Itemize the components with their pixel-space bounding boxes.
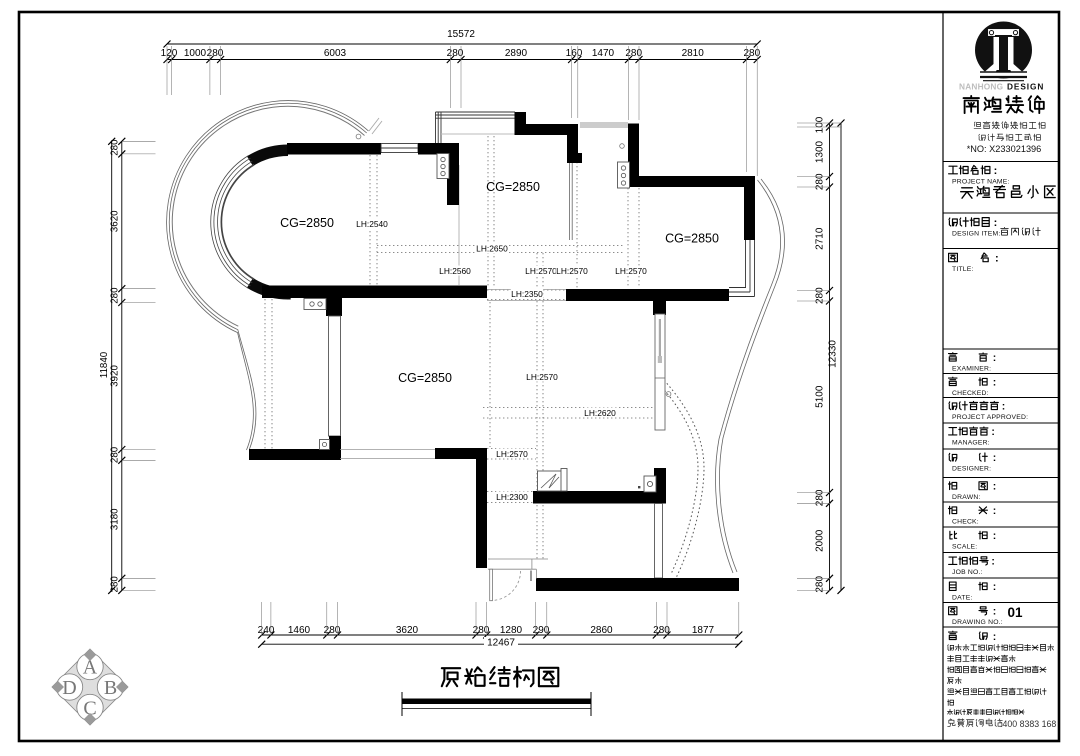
svg-text:280: 280 <box>815 287 826 304</box>
svg-text:2890: 2890 <box>505 48 528 59</box>
svg-text:DESIGNER:: DESIGNER: <box>952 466 991 473</box>
svg-text:2810: 2810 <box>682 48 705 59</box>
svg-text:280: 280 <box>815 173 826 190</box>
svg-text:CHECKED:: CHECKED: <box>952 390 989 397</box>
svg-text:LH:2570: LH:2570 <box>556 266 588 276</box>
svg-text:LH:2570: LH:2570 <box>526 372 558 382</box>
svg-text:DRAWN:: DRAWN: <box>952 494 981 501</box>
svg-text:11840: 11840 <box>99 351 110 378</box>
svg-text:280: 280 <box>324 625 341 636</box>
svg-text:LH:2300: LH:2300 <box>496 492 528 502</box>
svg-text:DRAWING NO.:: DRAWING NO.: <box>952 619 1003 626</box>
svg-text:NANHONG: NANHONG <box>959 82 1003 92</box>
svg-text:3180: 3180 <box>110 508 121 530</box>
svg-text:CG=2850: CG=2850 <box>665 232 719 246</box>
svg-text:LH:2570: LH:2570 <box>615 266 647 276</box>
svg-text:6003: 6003 <box>324 48 347 59</box>
svg-text:LH:2560: LH:2560 <box>439 266 471 276</box>
svg-text:B: B <box>104 677 117 699</box>
svg-text:280: 280 <box>110 446 121 463</box>
svg-text:DESIGN: DESIGN <box>1007 82 1044 92</box>
svg-text::: : <box>993 581 997 593</box>
svg-text:SCALE:: SCALE: <box>952 544 977 551</box>
svg-text:3620: 3620 <box>110 210 121 232</box>
svg-text:1300: 1300 <box>815 140 826 163</box>
svg-text:LH:2350: LH:2350 <box>511 289 543 299</box>
svg-text::: : <box>1002 401 1006 413</box>
svg-text:15572: 15572 <box>447 29 475 40</box>
svg-text:DATE:: DATE: <box>952 595 973 602</box>
svg-text:1877: 1877 <box>692 625 715 636</box>
svg-text:TITLE:: TITLE: <box>952 266 974 273</box>
svg-text:12467: 12467 <box>487 638 515 649</box>
svg-text:100: 100 <box>815 116 826 133</box>
svg-text:LH:2540: LH:2540 <box>356 219 388 229</box>
svg-text::: : <box>993 377 997 389</box>
svg-text:LH:2650: LH:2650 <box>476 244 508 254</box>
svg-text::: : <box>993 452 997 464</box>
svg-text::: : <box>995 253 999 265</box>
svg-text:2710: 2710 <box>815 227 826 250</box>
svg-text::400 8383 168: :400 8383 168 <box>1000 719 1056 729</box>
svg-text:5100: 5100 <box>815 385 826 408</box>
svg-text:LH:2570: LH:2570 <box>525 266 557 276</box>
svg-text:PROJECT APPROVED:: PROJECT APPROVED: <box>952 414 1028 421</box>
svg-text:280: 280 <box>207 48 224 59</box>
svg-text:3620: 3620 <box>396 625 419 636</box>
svg-text:D: D <box>62 677 76 699</box>
svg-text::: : <box>991 426 995 438</box>
svg-text:240: 240 <box>258 625 275 636</box>
svg-text:CG=2850: CG=2850 <box>486 180 540 194</box>
svg-text:CHECK:: CHECK: <box>952 519 979 526</box>
svg-text:280: 280 <box>743 48 760 59</box>
svg-text:CG=2850: CG=2850 <box>398 371 452 385</box>
svg-text::: : <box>993 481 997 493</box>
svg-text:280: 280 <box>625 48 642 59</box>
svg-text:280: 280 <box>110 287 121 304</box>
svg-text:280: 280 <box>653 625 670 636</box>
svg-text:LH:2570: LH:2570 <box>496 449 528 459</box>
svg-text:160: 160 <box>566 48 583 59</box>
svg-text:MANAGER:: MANAGER: <box>952 440 990 447</box>
svg-text:120: 120 <box>161 48 178 59</box>
svg-text:EXAMINER:: EXAMINER: <box>952 366 991 373</box>
svg-text:1000: 1000 <box>184 48 207 59</box>
svg-text:280: 280 <box>110 576 121 593</box>
svg-text:1460: 1460 <box>288 625 311 636</box>
svg-text:290: 290 <box>533 625 550 636</box>
svg-text::: : <box>993 631 997 643</box>
svg-text::: : <box>993 530 997 542</box>
svg-text::: : <box>991 556 995 568</box>
svg-text:JOB NO.:: JOB NO.: <box>952 569 983 576</box>
svg-text:280: 280 <box>815 489 826 506</box>
svg-text:CG=2850: CG=2850 <box>280 216 334 230</box>
svg-text:280: 280 <box>473 625 490 636</box>
svg-text::: : <box>993 352 997 364</box>
svg-text:01: 01 <box>1007 605 1023 620</box>
svg-text:3920: 3920 <box>110 365 121 387</box>
svg-text:DESIGN ITEM:: DESIGN ITEM: <box>952 231 1000 238</box>
svg-text::: : <box>993 606 997 618</box>
svg-text:LH:2620: LH:2620 <box>584 408 616 418</box>
svg-text:PROJECT NAME:: PROJECT NAME: <box>952 179 1010 186</box>
svg-text::: : <box>993 505 997 517</box>
svg-text:2000: 2000 <box>815 529 826 552</box>
svg-text:1470: 1470 <box>592 48 615 59</box>
svg-text::: : <box>994 165 998 177</box>
svg-text::: : <box>994 217 998 229</box>
svg-text:1280: 1280 <box>500 625 523 636</box>
svg-text:280: 280 <box>110 139 121 156</box>
svg-text:2860: 2860 <box>590 625 613 636</box>
svg-text:*NO: X233021396: *NO: X233021396 <box>967 144 1042 154</box>
